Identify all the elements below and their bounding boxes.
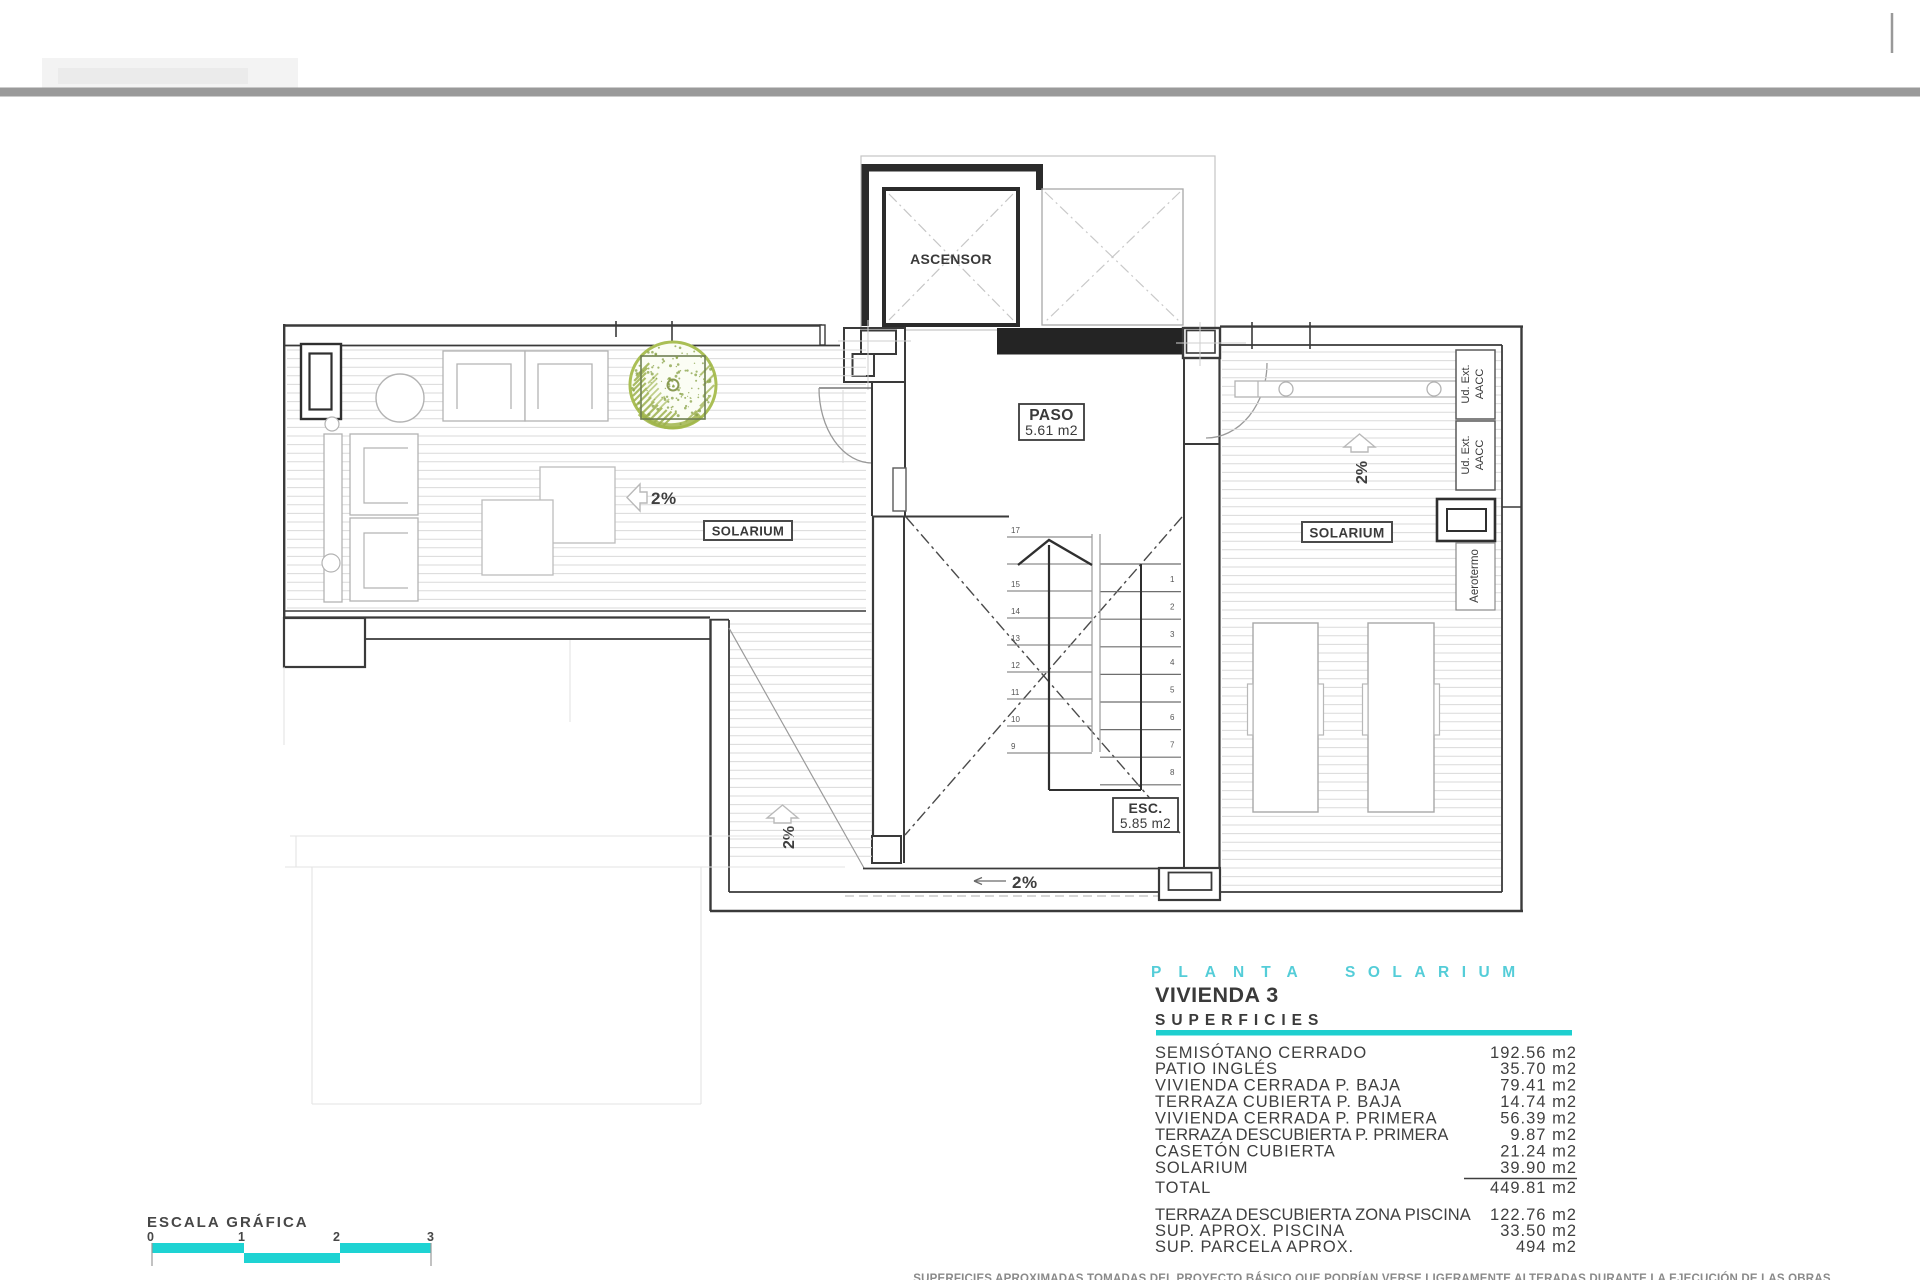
svg-text:0: 0 — [147, 1230, 154, 1244]
svg-text:VIVIENDA CERRADA P. PRIMERA: VIVIENDA CERRADA P. PRIMERA — [1155, 1110, 1438, 1128]
svg-text:AACC: AACC — [1474, 440, 1486, 471]
svg-text:7: 7 — [1170, 741, 1175, 750]
svg-text:2%: 2% — [1354, 461, 1371, 484]
svg-text:CASETÓN CUBIERTA: CASETÓN CUBIERTA — [1155, 1142, 1336, 1161]
svg-text:14: 14 — [1011, 607, 1020, 616]
svg-text:17: 17 — [1011, 526, 1020, 535]
svg-text:TERRAZA DESCUBIERTA P. PRIMERA: TERRAZA DESCUBIERTA P. PRIMERA — [1155, 1126, 1448, 1144]
svg-text:11: 11 — [1011, 688, 1020, 697]
svg-text:2%: 2% — [1012, 873, 1038, 892]
svg-text:PATIO INGLÉS: PATIO INGLÉS — [1155, 1059, 1278, 1078]
svg-text:2%: 2% — [781, 826, 798, 849]
svg-text:1: 1 — [238, 1230, 245, 1244]
svg-text:SOLARIUM: SOLARIUM — [1155, 1159, 1248, 1177]
svg-text:3: 3 — [427, 1230, 434, 1244]
svg-text:12: 12 — [1011, 661, 1020, 670]
svg-text:56.39 m2: 56.39 m2 — [1500, 1110, 1577, 1128]
svg-text:3: 3 — [1170, 630, 1175, 639]
svg-text:Ud. Ext.: Ud. Ext. — [1460, 364, 1472, 403]
svg-text:9: 9 — [1011, 742, 1016, 751]
svg-text:SOLARIUM: SOLARIUM — [1309, 526, 1384, 541]
svg-text:4: 4 — [1170, 658, 1175, 667]
svg-text:5.61 m2: 5.61 m2 — [1025, 422, 1078, 438]
svg-text:ESC.: ESC. — [1129, 800, 1163, 816]
svg-text:10: 10 — [1011, 715, 1020, 724]
svg-text:2: 2 — [1170, 603, 1175, 612]
svg-text:PLANTA: PLANTA — [1151, 964, 1315, 981]
svg-text:VIVIENDA CERRADA P. BAJA: VIVIENDA CERRADA P. BAJA — [1155, 1077, 1401, 1095]
svg-text:Aerotermo: Aerotermo — [1469, 549, 1481, 603]
svg-text:9.87 m2: 9.87 m2 — [1510, 1126, 1577, 1144]
svg-text:5: 5 — [1170, 685, 1175, 694]
svg-text:2%: 2% — [651, 489, 677, 508]
svg-text:449.81 m2: 449.81 m2 — [1490, 1179, 1577, 1197]
svg-text:TOTAL: TOTAL — [1155, 1179, 1211, 1197]
svg-text:ASCENSOR: ASCENSOR — [910, 251, 992, 267]
svg-text:SUPERFICIES APROXIMADAS TOMADA: SUPERFICIES APROXIMADAS TOMADAS DEL PROY… — [913, 1272, 1831, 1280]
svg-text:VIVIENDA 3: VIVIENDA 3 — [1155, 983, 1279, 1007]
svg-text:1: 1 — [1170, 575, 1175, 584]
svg-text:SOLARIUM: SOLARIUM — [1345, 964, 1528, 981]
svg-text:SOLARIUM: SOLARIUM — [712, 524, 785, 539]
svg-text:SUPERFICIES: SUPERFICIES — [1155, 1012, 1324, 1029]
svg-text:21.24 m2: 21.24 m2 — [1500, 1143, 1577, 1161]
svg-text:35.70 m2: 35.70 m2 — [1500, 1060, 1577, 1078]
svg-text:14.74 m2: 14.74 m2 — [1500, 1093, 1577, 1111]
svg-text:8: 8 — [1170, 768, 1175, 777]
svg-text:494 m2: 494 m2 — [1516, 1238, 1577, 1256]
svg-text:ESCALA GRÁFICA: ESCALA GRÁFICA — [147, 1214, 309, 1231]
svg-text:2: 2 — [333, 1230, 340, 1244]
svg-text:Ud. Ext.: Ud. Ext. — [1460, 435, 1472, 474]
svg-text:6: 6 — [1170, 713, 1175, 722]
svg-text:TERRAZA CUBIERTA P. BAJA: TERRAZA CUBIERTA P. BAJA — [1155, 1093, 1402, 1111]
svg-text:SUP. PARCELA APROX.: SUP. PARCELA APROX. — [1155, 1238, 1354, 1256]
svg-text:15: 15 — [1011, 580, 1020, 589]
svg-text:5.85 m2: 5.85 m2 — [1120, 816, 1171, 831]
svg-text:79.41 m2: 79.41 m2 — [1500, 1077, 1577, 1095]
svg-text:13: 13 — [1011, 634, 1020, 643]
svg-text:39.90 m2: 39.90 m2 — [1500, 1159, 1577, 1177]
svg-text:AACC: AACC — [1474, 369, 1486, 400]
